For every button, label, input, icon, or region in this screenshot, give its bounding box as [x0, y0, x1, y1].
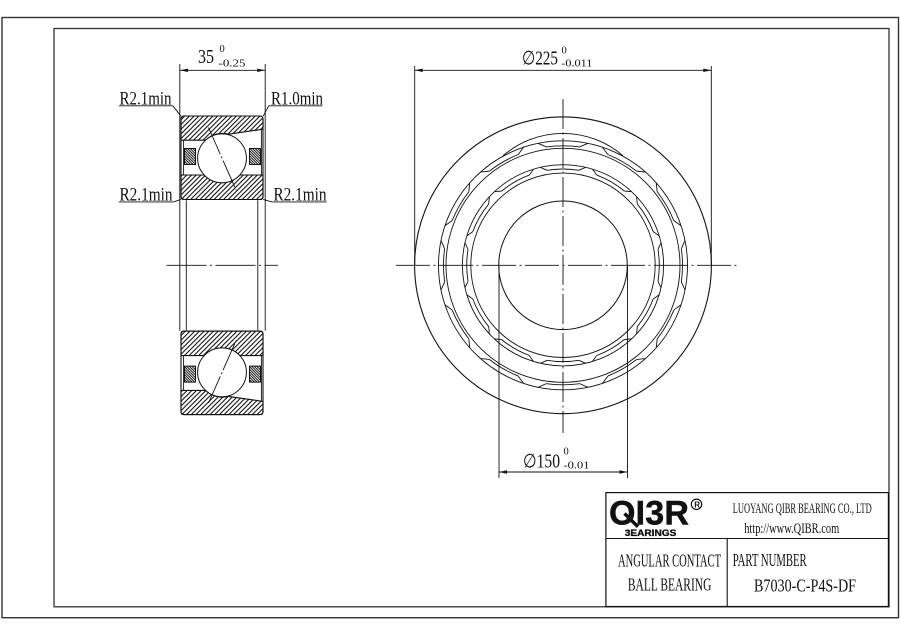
svg-text:-0.25: -0.25: [219, 58, 246, 69]
svg-text:OI3R: OI3R: [609, 495, 689, 533]
svg-text:3EARINGS: 3EARINGS: [625, 528, 677, 539]
svg-text:∅225: ∅225: [522, 49, 558, 70]
svg-text:BALL BEARING: BALL BEARING: [628, 575, 712, 595]
svg-text:∅150: ∅150: [523, 451, 560, 472]
svg-text:http://www.QIBR.com: http://www.QIBR.com: [744, 521, 840, 537]
svg-text:35: 35: [198, 46, 214, 68]
svg-text:R: R: [694, 500, 700, 509]
svg-text:PART NUMBER: PART NUMBER: [733, 550, 807, 570]
svg-text:-0.01: -0.01: [564, 460, 590, 471]
svg-text:B7030-C-P4S-DF: B7030-C-P4S-DF: [754, 575, 856, 595]
svg-text:0: 0: [220, 44, 225, 55]
svg-text:0: 0: [564, 447, 569, 458]
svg-text:-0.011: -0.011: [561, 58, 592, 69]
svg-text:LUOYANG QIBR BEARING CO., LTD: LUOYANG QIBR BEARING CO., LTD: [733, 501, 872, 517]
svg-text:ANGULAR CONTACT: ANGULAR CONTACT: [618, 551, 721, 571]
svg-text:0: 0: [562, 45, 567, 56]
